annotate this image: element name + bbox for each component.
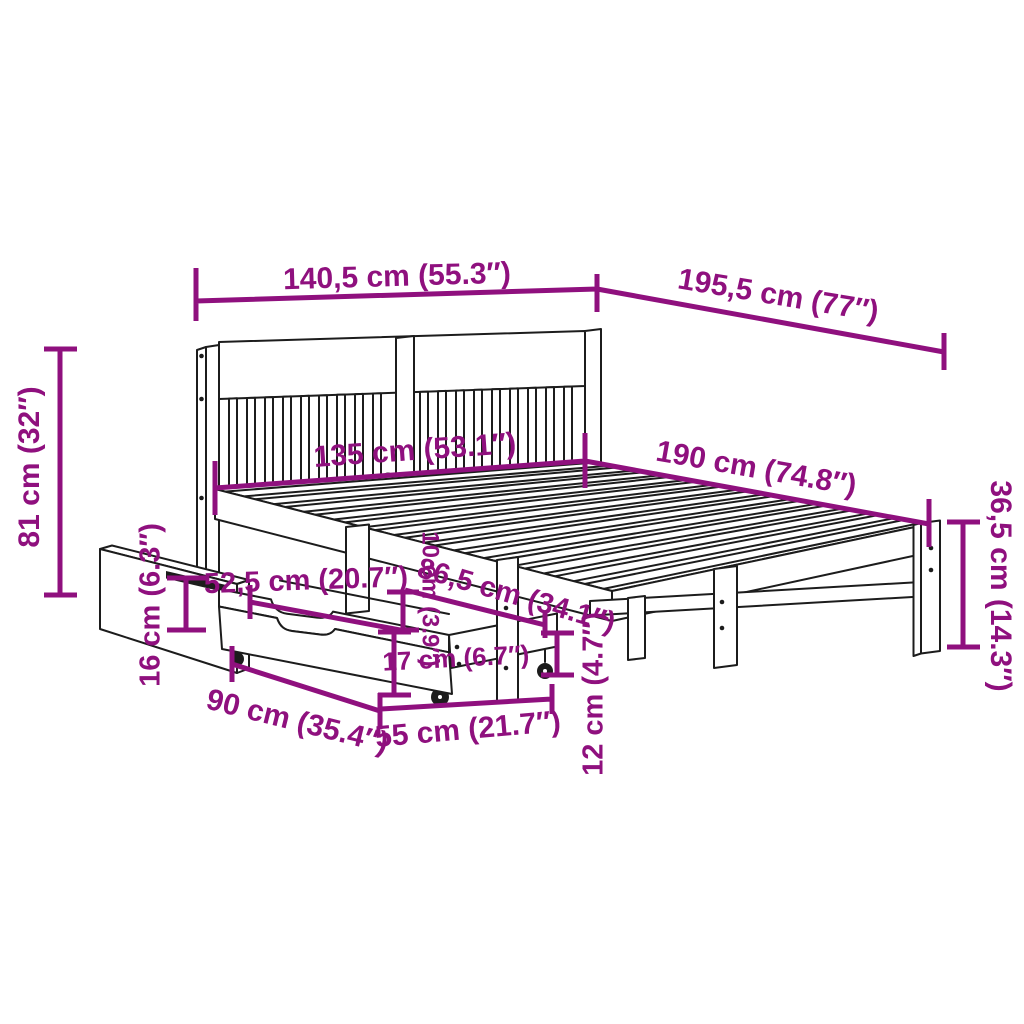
dim-label-drawer-depth: 55 cm (21.7″) [374,705,562,754]
headboard-left-post-side [197,347,206,593]
screw-icon [720,600,725,605]
dim-label-floor-clearance: 12 cm (4.7″) [578,612,610,776]
screw-icon [720,626,725,631]
dim-label-drawer-width: 90 cm (35.4″) [203,683,392,760]
dim-label-headboard-height: 81 cm (32″) [13,386,46,547]
screw-icon [929,568,934,573]
dim-total-width: 140,5 cm (55.3″) [196,257,597,321]
dim-label-drawer-back-height: 16 cm (6.3″) [135,523,167,687]
dim-label-foot-end-height: 36,5 cm (14.3″) [984,480,1017,691]
dim-headboard-height: 81 cm (32″) [13,349,77,595]
screw-icon [199,496,204,501]
screw-icon [199,354,204,359]
dim-label-drawer-opening-width: 52,5 cm (20.7″) [203,561,408,600]
dim-foot-end-height: 36,5 cm (14.3″) [947,480,1017,691]
dim-label-total-length: 195,5 cm (77″) [676,262,881,328]
support-leg [628,596,645,660]
caster-hub [438,695,442,699]
dimension-diagram: 140,5 cm (55.3″) 195,5 cm (77″) 81 cm (3… [0,0,1024,1024]
dim-total-length: 195,5 cm (77″) [597,262,944,370]
dim-label-total-width: 140,5 cm (55.3″) [283,257,512,297]
bed-frame-diagram-svg: 140,5 cm (55.3″) 195,5 cm (77″) 81 cm (3… [0,0,1024,1024]
support-leg [714,566,737,668]
screw-icon [199,397,204,402]
caster-hub [543,669,547,673]
foot-leg-side [914,523,922,656]
